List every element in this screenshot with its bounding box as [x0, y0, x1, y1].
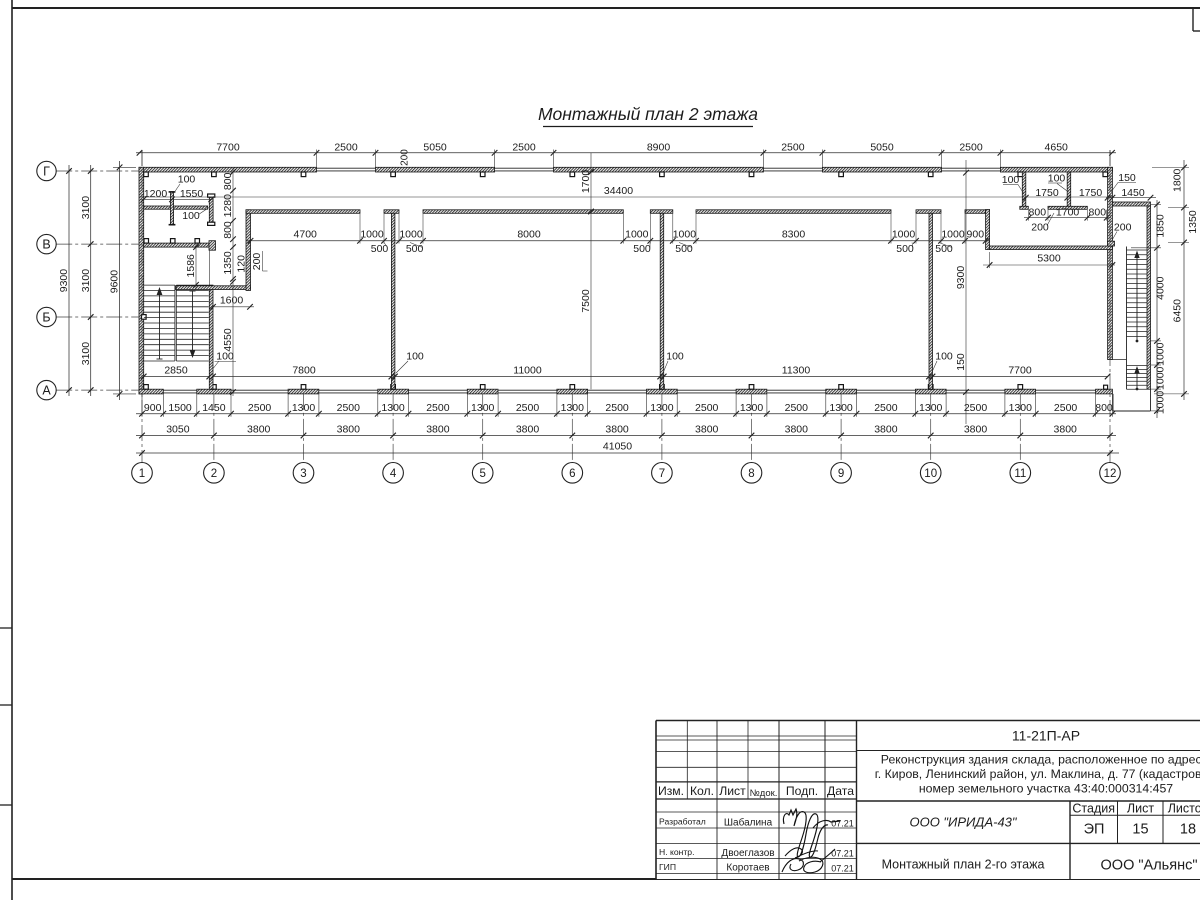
- svg-text:1: 1: [139, 468, 145, 480]
- svg-text:15: 15: [1132, 822, 1148, 838]
- svg-text:номер земельного участка 43:40: номер земельного участка 43:40:000314:45…: [919, 782, 1173, 796]
- svg-text:2500: 2500: [785, 402, 809, 414]
- svg-text:3050: 3050: [166, 423, 190, 435]
- svg-text:3800: 3800: [964, 423, 988, 435]
- svg-text:3100: 3100: [80, 342, 92, 366]
- svg-text:11: 11: [1014, 468, 1026, 480]
- svg-text:1300: 1300: [561, 402, 585, 414]
- svg-text:2500: 2500: [516, 402, 540, 414]
- svg-text:100: 100: [406, 351, 424, 363]
- svg-text:100: 100: [178, 173, 196, 185]
- svg-text:2500: 2500: [512, 141, 536, 153]
- svg-text:1300: 1300: [829, 402, 853, 414]
- svg-text:1500: 1500: [168, 402, 192, 414]
- svg-text:100: 100: [666, 351, 684, 363]
- svg-text:200: 200: [251, 253, 263, 271]
- svg-text:9300: 9300: [955, 266, 967, 290]
- svg-text:1586: 1586: [185, 254, 197, 278]
- svg-text:4000: 4000: [1154, 276, 1166, 300]
- svg-text:11000: 11000: [513, 365, 542, 377]
- svg-text:8000: 8000: [517, 229, 541, 241]
- svg-text:8900: 8900: [647, 141, 671, 153]
- svg-text:5050: 5050: [423, 141, 447, 153]
- svg-text:3800: 3800: [874, 423, 898, 435]
- svg-text:5300: 5300: [1037, 253, 1061, 265]
- svg-text:3800: 3800: [516, 423, 540, 435]
- svg-text:1850: 1850: [1154, 214, 1166, 238]
- svg-text:100: 100: [1002, 174, 1020, 186]
- svg-text:100: 100: [935, 351, 953, 363]
- svg-text:В: В: [42, 238, 50, 252]
- svg-text:2500: 2500: [1054, 402, 1078, 414]
- svg-text:1300: 1300: [1009, 402, 1033, 414]
- svg-text:2500: 2500: [695, 402, 719, 414]
- svg-text:1000: 1000: [673, 229, 697, 241]
- svg-text:500: 500: [896, 243, 914, 255]
- svg-text:ООО "Альянс": ООО "Альянс": [1101, 858, 1198, 874]
- svg-text:Н. контр.: Н. контр.: [659, 847, 694, 857]
- svg-text:8: 8: [748, 468, 754, 480]
- svg-text:Г: Г: [43, 165, 50, 179]
- svg-text:2500: 2500: [964, 402, 988, 414]
- svg-text:Стадия: Стадия: [1072, 802, 1115, 816]
- svg-text:Монтажный план 2 этажа: Монтажный план 2 этажа: [538, 104, 758, 124]
- svg-text:18: 18: [1180, 822, 1196, 838]
- svg-text:6450: 6450: [1172, 299, 1184, 323]
- svg-text:3100: 3100: [80, 269, 92, 293]
- svg-text:1450: 1450: [202, 402, 226, 414]
- svg-text:Реконструкция здания склада, р: Реконструкция здания склада, расположенн…: [881, 753, 1200, 767]
- svg-text:1600: 1600: [220, 294, 244, 306]
- svg-text:№док.: №док.: [750, 788, 778, 799]
- svg-text:1700: 1700: [580, 170, 592, 194]
- svg-text:1300: 1300: [650, 402, 674, 414]
- svg-text:1000: 1000: [1154, 342, 1166, 366]
- svg-text:11-21П-АР: 11-21П-АР: [1012, 728, 1080, 744]
- svg-text:1200: 1200: [144, 188, 168, 200]
- svg-text:500: 500: [406, 243, 424, 255]
- svg-text:500: 500: [935, 243, 953, 255]
- svg-text:200: 200: [400, 149, 411, 166]
- svg-text:3100: 3100: [80, 196, 92, 220]
- svg-text:4: 4: [390, 468, 397, 480]
- svg-text:ЭП: ЭП: [1084, 822, 1105, 838]
- svg-text:1750: 1750: [1035, 187, 1059, 199]
- svg-text:3800: 3800: [605, 423, 629, 435]
- svg-text:1000: 1000: [399, 229, 423, 241]
- svg-text:1350: 1350: [1187, 210, 1199, 234]
- svg-text:2500: 2500: [334, 141, 358, 153]
- svg-text:41050: 41050: [603, 441, 632, 453]
- svg-text:Лист: Лист: [1127, 802, 1154, 816]
- svg-text:1450: 1450: [1121, 187, 1145, 199]
- svg-text:07.21: 07.21: [831, 864, 854, 874]
- svg-text:2500: 2500: [874, 402, 898, 414]
- svg-text:1000: 1000: [1154, 366, 1166, 390]
- svg-text:3800: 3800: [695, 423, 719, 435]
- svg-text:Шабалина: Шабалина: [724, 817, 773, 829]
- svg-text:1800: 1800: [1172, 168, 1184, 192]
- svg-text:2850: 2850: [164, 365, 188, 377]
- svg-text:800: 800: [1089, 206, 1107, 218]
- svg-text:200: 200: [1031, 221, 1049, 233]
- svg-text:9300: 9300: [58, 269, 70, 293]
- svg-text:7700: 7700: [216, 141, 240, 153]
- svg-text:Лист: Лист: [719, 784, 746, 798]
- svg-text:г. Киров, Ленинский район, ул.: г. Киров, Ленинский район, ул. Маклина, …: [875, 767, 1200, 781]
- svg-text:1350: 1350: [222, 251, 234, 275]
- svg-text:Изм.: Изм.: [658, 784, 684, 798]
- svg-text:Листов: Листов: [1168, 802, 1200, 816]
- svg-text:11300: 11300: [782, 365, 811, 377]
- svg-text:10: 10: [924, 468, 937, 480]
- svg-text:3: 3: [300, 468, 306, 480]
- svg-text:5: 5: [479, 468, 485, 480]
- svg-text:2500: 2500: [959, 141, 983, 153]
- svg-text:1700: 1700: [1056, 206, 1080, 218]
- svg-text:4550: 4550: [222, 328, 234, 352]
- svg-text:1000: 1000: [1154, 391, 1166, 415]
- svg-text:3800: 3800: [337, 423, 361, 435]
- svg-text:100: 100: [182, 210, 200, 222]
- svg-text:4700: 4700: [294, 229, 318, 241]
- svg-text:2500: 2500: [248, 402, 272, 414]
- svg-text:1750: 1750: [1079, 187, 1103, 199]
- svg-text:1000: 1000: [360, 229, 384, 241]
- svg-text:Дата: Дата: [827, 784, 854, 798]
- svg-text:2500: 2500: [605, 402, 629, 414]
- svg-text:8300: 8300: [782, 229, 806, 241]
- svg-text:800: 800: [1029, 206, 1047, 218]
- svg-text:3800: 3800: [426, 423, 450, 435]
- svg-text:7800: 7800: [292, 365, 316, 377]
- svg-text:9600: 9600: [108, 270, 120, 294]
- svg-text:Б: Б: [42, 311, 50, 325]
- svg-text:Монтажный план 2-го этажа: Монтажный план 2-го этажа: [882, 858, 1045, 872]
- svg-text:1000: 1000: [892, 229, 916, 241]
- svg-text:2500: 2500: [426, 402, 450, 414]
- svg-text:2500: 2500: [781, 141, 805, 153]
- svg-text:500: 500: [633, 243, 651, 255]
- svg-text:1300: 1300: [919, 402, 943, 414]
- svg-text:7500: 7500: [580, 289, 592, 313]
- svg-text:Подп.: Подп.: [786, 784, 818, 798]
- svg-text:1300: 1300: [471, 402, 495, 414]
- svg-text:3800: 3800: [247, 423, 271, 435]
- svg-text:ГИП: ГИП: [659, 862, 676, 872]
- svg-text:900: 900: [144, 402, 162, 414]
- svg-text:ООО "ИРИДА-43": ООО "ИРИДА-43": [909, 815, 1017, 830]
- svg-text:120: 120: [236, 255, 248, 273]
- svg-text:1000: 1000: [625, 229, 649, 241]
- svg-text:Коротаев: Коротаев: [726, 863, 769, 874]
- svg-text:800: 800: [222, 221, 234, 239]
- svg-text:5050: 5050: [870, 141, 894, 153]
- svg-text:7: 7: [659, 468, 665, 480]
- svg-text:800: 800: [1095, 402, 1113, 414]
- svg-text:1300: 1300: [740, 402, 764, 414]
- svg-text:07.21: 07.21: [831, 819, 854, 829]
- svg-text:А: А: [42, 384, 51, 398]
- svg-text:12: 12: [1104, 468, 1117, 480]
- svg-text:34400: 34400: [604, 185, 633, 197]
- svg-text:7700: 7700: [1008, 365, 1032, 377]
- svg-text:800: 800: [222, 172, 234, 190]
- svg-text:150: 150: [1118, 172, 1136, 184]
- svg-text:6: 6: [569, 468, 575, 480]
- svg-text:3800: 3800: [1054, 423, 1078, 435]
- svg-text:1550: 1550: [180, 188, 204, 200]
- svg-text:Кол.: Кол.: [690, 784, 714, 798]
- svg-text:2: 2: [211, 468, 217, 480]
- svg-text:1300: 1300: [381, 402, 405, 414]
- svg-text:1000: 1000: [941, 229, 965, 241]
- svg-text:100: 100: [1048, 173, 1066, 185]
- svg-text:4650: 4650: [1045, 141, 1069, 153]
- svg-text:900: 900: [967, 229, 985, 241]
- svg-text:500: 500: [675, 243, 693, 255]
- svg-text:1300: 1300: [292, 402, 316, 414]
- svg-text:Разработал: Разработал: [659, 817, 706, 827]
- svg-text:1280: 1280: [222, 194, 234, 218]
- svg-text:9: 9: [838, 468, 844, 480]
- svg-text:Двоеглазов: Двоеглазов: [721, 848, 774, 859]
- svg-text:3800: 3800: [785, 423, 809, 435]
- svg-text:2500: 2500: [337, 402, 361, 414]
- svg-text:150: 150: [955, 353, 967, 371]
